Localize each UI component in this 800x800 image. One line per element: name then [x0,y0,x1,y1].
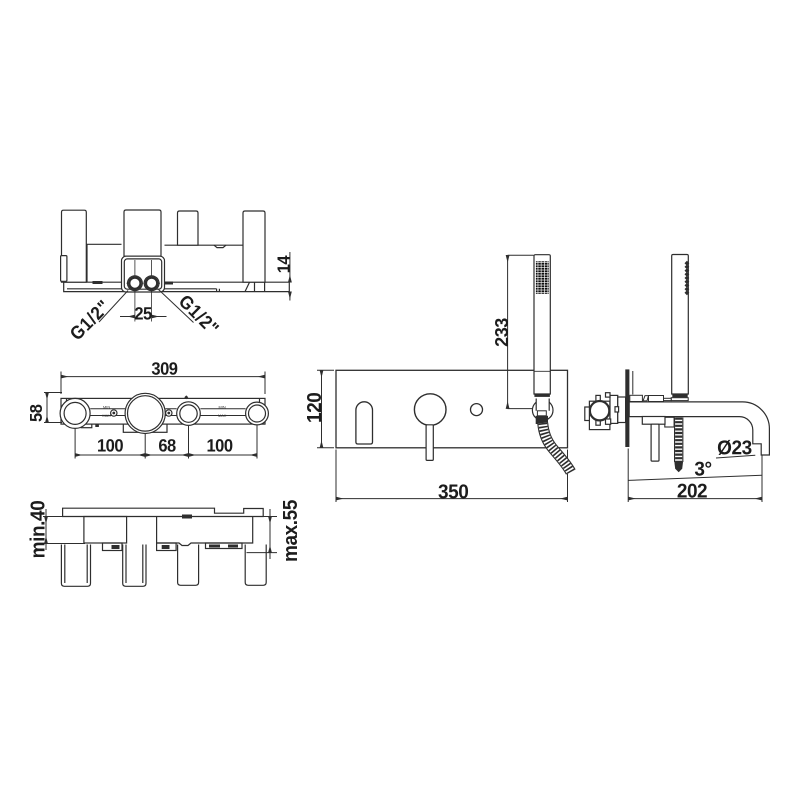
svg-text:350: 350 [438,481,469,504]
svg-text:MIN: MIN [103,404,110,409]
svg-text:MAX: MAX [218,413,227,418]
svg-text:Ø23: Ø23 [717,437,752,460]
svg-text:68: 68 [158,435,176,456]
svg-text:max.55: max.55 [280,500,303,562]
svg-text:120: 120 [303,392,326,423]
svg-text:25: 25 [134,303,152,324]
svg-text:309: 309 [151,358,177,379]
svg-text:14: 14 [273,255,294,273]
svg-text:100: 100 [97,435,123,456]
svg-text:MIN: MIN [219,404,226,409]
svg-text:58: 58 [26,404,47,422]
svg-text:233: 233 [491,318,513,347]
svg-text:3°: 3° [694,458,711,481]
svg-text:202: 202 [677,480,708,503]
svg-text:min.40: min.40 [27,500,50,558]
svg-text:MAX: MAX [102,413,111,418]
svg-text:100: 100 [206,435,232,456]
